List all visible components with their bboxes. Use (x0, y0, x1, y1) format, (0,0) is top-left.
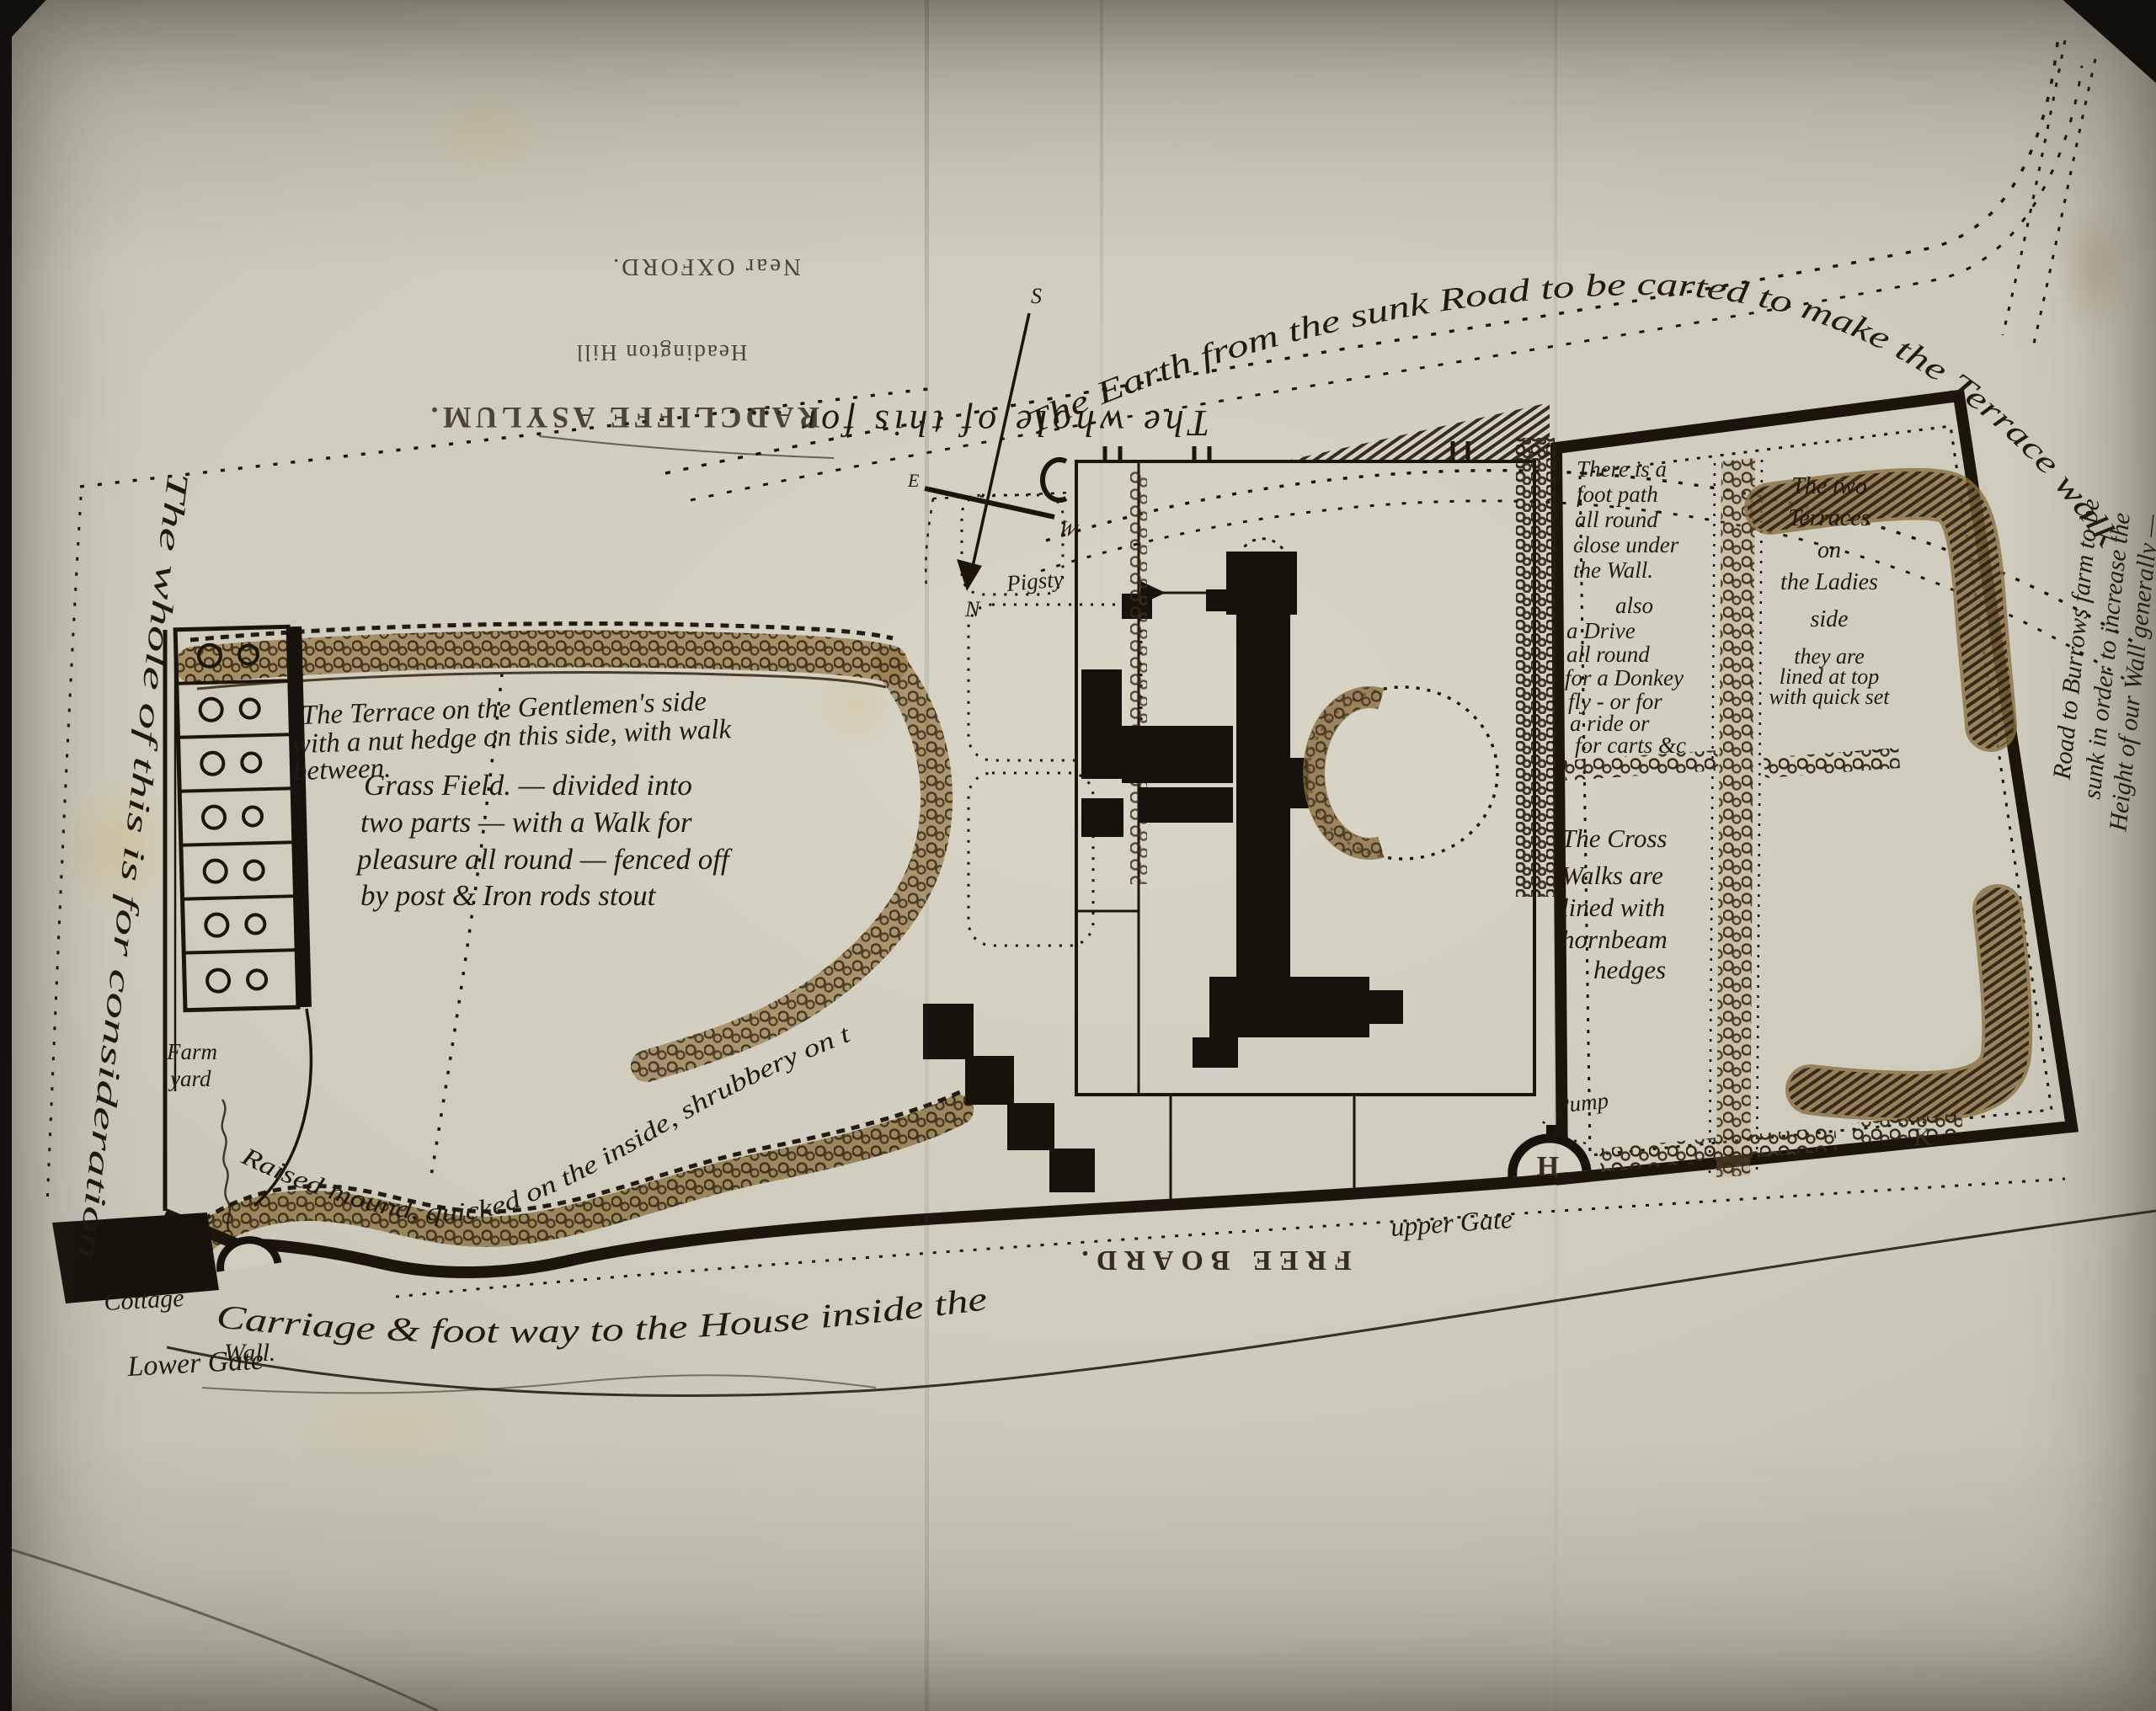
label-lower-gate: Lower Gate (125, 1345, 264, 1383)
ladies-line: side (1810, 606, 1848, 632)
hatched-slope-wedge (1290, 402, 1550, 460)
printed-title-block: RADCLIFFE ASYLUM. Headington Hill Near O… (426, 253, 819, 434)
free-board-label: FREE BOARD. (1074, 1245, 1351, 1276)
ladies-line: Terraces (1789, 505, 1870, 531)
note-carriage-way: Carriage & foot way to the House inside … (215, 1279, 990, 1350)
compass-north: N (964, 597, 981, 621)
letter-corner-k: K (1913, 1123, 1932, 1151)
road-lines (0, 1211, 2156, 1711)
foot-path-line: all round (1575, 507, 1658, 532)
compass-rose (925, 313, 1054, 591)
svg-text:The whole of this is for consi: The whole of this is for consideration (72, 471, 195, 1261)
foot-path-line: also (1615, 593, 1653, 618)
cross-walks-line: hedges (1593, 955, 1666, 984)
title-subtitle: Headington Hill (575, 340, 748, 365)
note-left-margin: The whole of this is for consideration (72, 471, 195, 1261)
label-yard: yard (168, 1066, 211, 1091)
foot-path-line: There is a (1577, 456, 1667, 482)
cross-walks-line: lined with (1561, 893, 1665, 922)
foot-path-line: for carts &c (1575, 733, 1686, 758)
label-cottage: Cottage (104, 1284, 185, 1316)
title-institution: RADCLIFFE ASYLUM. (426, 401, 819, 434)
compass-east: E (907, 470, 920, 491)
grass-field-line-4: by post & Iron rods stout (360, 879, 657, 912)
ladies-line: on (1817, 537, 1841, 563)
label-upper-gate: upper Gate (1390, 1203, 1513, 1242)
svg-text:Carriage & foot way to the Hou: Carriage & foot way to the House inside … (215, 1279, 990, 1350)
grass-field-line-2: two parts — with a Walk for (360, 806, 692, 839)
cross-walks-line: Walks are (1561, 861, 1663, 890)
lower-gate-arch (221, 1240, 278, 1271)
foot-path-line: for a Donkey (1565, 665, 1684, 690)
title-location: Near OXFORD. (611, 253, 801, 280)
label-pump: Pump (1553, 1088, 1609, 1119)
photo-edge-left (0, 0, 12, 1711)
asylum-grounds-plan: The Earth from the sunk Road to be carte… (0, 0, 2156, 1711)
letter-gate-h: H (1537, 1151, 1559, 1182)
gate-crescent-mark (1043, 460, 1066, 500)
grass-field-line-1: Grass Field. — divided into (364, 769, 692, 802)
compass-south: S (1031, 284, 1042, 308)
foot-path-line: all round (1566, 642, 1650, 667)
ladies-line: with quick set (1769, 685, 1891, 709)
label-farm: Farm (166, 1039, 217, 1064)
note-cross-walks: The Cross Walks are lined with hornbeam … (1561, 824, 1668, 984)
grass-field-line-3: pleasure all round — fenced off (355, 843, 733, 876)
foot-path-line: close under (1573, 532, 1679, 557)
label-pigsty: Pigsty (1005, 566, 1065, 596)
cross-walks-line: hornbeam (1561, 925, 1668, 954)
ladies-line: the Ladies (1780, 569, 1878, 595)
cross-walks-line: The Cross (1561, 824, 1667, 853)
foot-path-line: foot path (1577, 482, 1658, 507)
ladies-line: The two (1791, 473, 1866, 499)
photograph-of-estate-plan: The Earth from the sunk Road to be carte… (0, 0, 2156, 1711)
note-grass-field: Grass Field. — divided into two parts — … (355, 769, 733, 912)
photo-edge-bottom-left (0, 1526, 10, 1711)
foot-path-line: a Drive (1566, 618, 1636, 643)
pump-mark (1546, 1125, 1557, 1138)
foot-path-line: the Wall. (1573, 557, 1653, 583)
tree-belt (1516, 438, 1555, 897)
